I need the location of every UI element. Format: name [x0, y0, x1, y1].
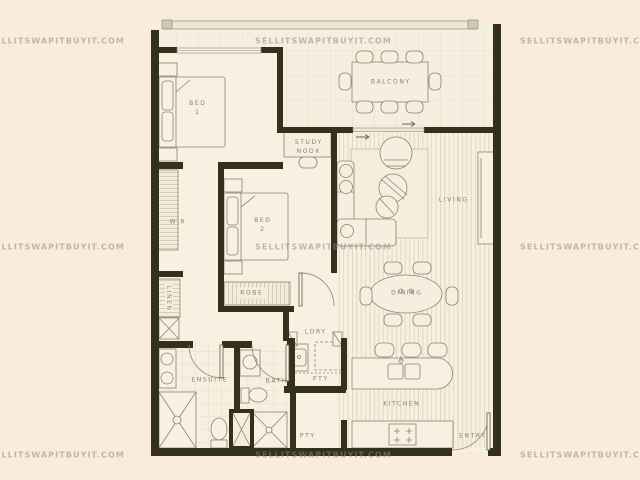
watermark-text: SELLITSWAPITBUYIT.COM: [255, 243, 392, 252]
entry-door-leaf: [487, 413, 490, 450]
shower-drain: [173, 416, 181, 424]
dining-chair: [360, 287, 372, 305]
wardrobe: [158, 170, 178, 250]
nightstand: [158, 63, 177, 76]
room-label-robe: ROBE: [237, 288, 266, 299]
floor-plan-page: BALCONY BED1 STUDYNOOK WIR BED2 LIVING D…: [0, 0, 640, 480]
basin: [161, 353, 173, 365]
tv-unit: [478, 152, 494, 244]
watermark-text: SELLITSWAPITBUYIT.COM: [520, 451, 640, 460]
stool: [402, 343, 421, 357]
outdoor-chair: [339, 73, 351, 90]
room-label-pty-lower: PTY: [298, 432, 315, 441]
dining-chair: [446, 287, 458, 305]
pillow: [227, 227, 238, 255]
toilet: [211, 418, 227, 440]
watermark-text: SELLITSWAPITBUYIT.COM: [255, 451, 392, 460]
sink: [405, 364, 420, 379]
room-label-dining: DINING: [390, 289, 423, 298]
watermark-text: SELLITSWAPITBUYIT.COM: [0, 37, 125, 46]
room-label-bed1: BED1: [188, 99, 207, 117]
room-label-linen: LINEN: [165, 284, 173, 312]
outdoor-chair: [406, 51, 423, 63]
room-label-kitchen: KITCHEN: [382, 400, 421, 409]
room-label-wir: WIR: [168, 218, 186, 227]
outdoor-chair: [406, 101, 423, 113]
outdoor-chair: [429, 73, 441, 90]
room-label-study-nook: STUDYNOOK: [293, 138, 322, 156]
sliding-door: [353, 128, 424, 131]
toilet-cistern: [211, 440, 227, 448]
outdoor-chair: [356, 101, 373, 113]
dining-chair: [413, 314, 431, 326]
balustrade: [164, 21, 476, 29]
study-chair: [299, 157, 317, 168]
room-label-living: LIVING: [437, 196, 468, 205]
room-label-pty-upper: PTY: [311, 375, 328, 384]
room-label-balcony: BALCONY: [369, 78, 410, 87]
nightstand: [224, 261, 242, 274]
basin: [161, 372, 173, 384]
dining-chair: [384, 314, 402, 326]
bed2-door-leaf: [299, 273, 302, 306]
room-label-ensuite: ENSUITE: [190, 376, 229, 385]
room-label-bath: BATH: [264, 377, 288, 386]
sofa-cushion: [341, 225, 354, 238]
sofa-cushion: [340, 165, 353, 178]
dining-chair: [413, 262, 431, 274]
room-label-entry: ENTRY: [458, 432, 487, 441]
pillow: [227, 197, 238, 225]
stool: [375, 343, 394, 357]
sink: [388, 364, 403, 379]
outdoor-chair: [381, 51, 398, 63]
toilet: [249, 388, 267, 402]
shower-drain: [266, 427, 272, 433]
outdoor-chair: [381, 101, 398, 113]
toilet-cistern: [241, 388, 249, 403]
basin: [243, 355, 257, 369]
armchair: [380, 137, 412, 169]
room-label-ldry: LDRY: [303, 328, 326, 337]
dining-chair: [384, 262, 402, 274]
floor-plan-drawing: [0, 0, 640, 480]
stool: [428, 343, 447, 357]
pillow: [162, 112, 173, 141]
watermark-text: SELLITSWAPITBUYIT.COM: [0, 243, 125, 252]
ensuite-door-leaf: [220, 345, 223, 378]
watermark-text: SELLITSWAPITBUYIT.COM: [255, 37, 392, 46]
nightstand: [224, 179, 242, 192]
watermark-text: SELLITSWAPITBUYIT.COM: [520, 243, 640, 252]
cooktop: [389, 424, 416, 445]
pillow: [162, 81, 173, 110]
outdoor-chair: [356, 51, 373, 63]
nightstand: [158, 148, 177, 161]
sofa-cushion: [340, 181, 353, 194]
watermark-text: SELLITSWAPITBUYIT.COM: [520, 37, 640, 46]
watermark-text: SELLITSWAPITBUYIT.COM: [0, 451, 125, 460]
room-label-bed2: BED2: [253, 216, 272, 234]
